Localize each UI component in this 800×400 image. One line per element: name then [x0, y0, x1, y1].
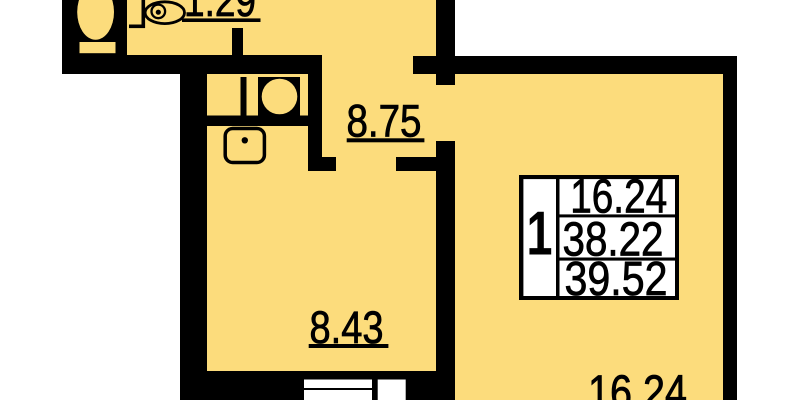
svg-text:39.52: 39.52 [565, 253, 668, 306]
svg-text:1: 1 [527, 200, 553, 269]
svg-text:1.29: 1.29 [184, 0, 256, 26]
svg-text:16.24: 16.24 [588, 365, 687, 400]
